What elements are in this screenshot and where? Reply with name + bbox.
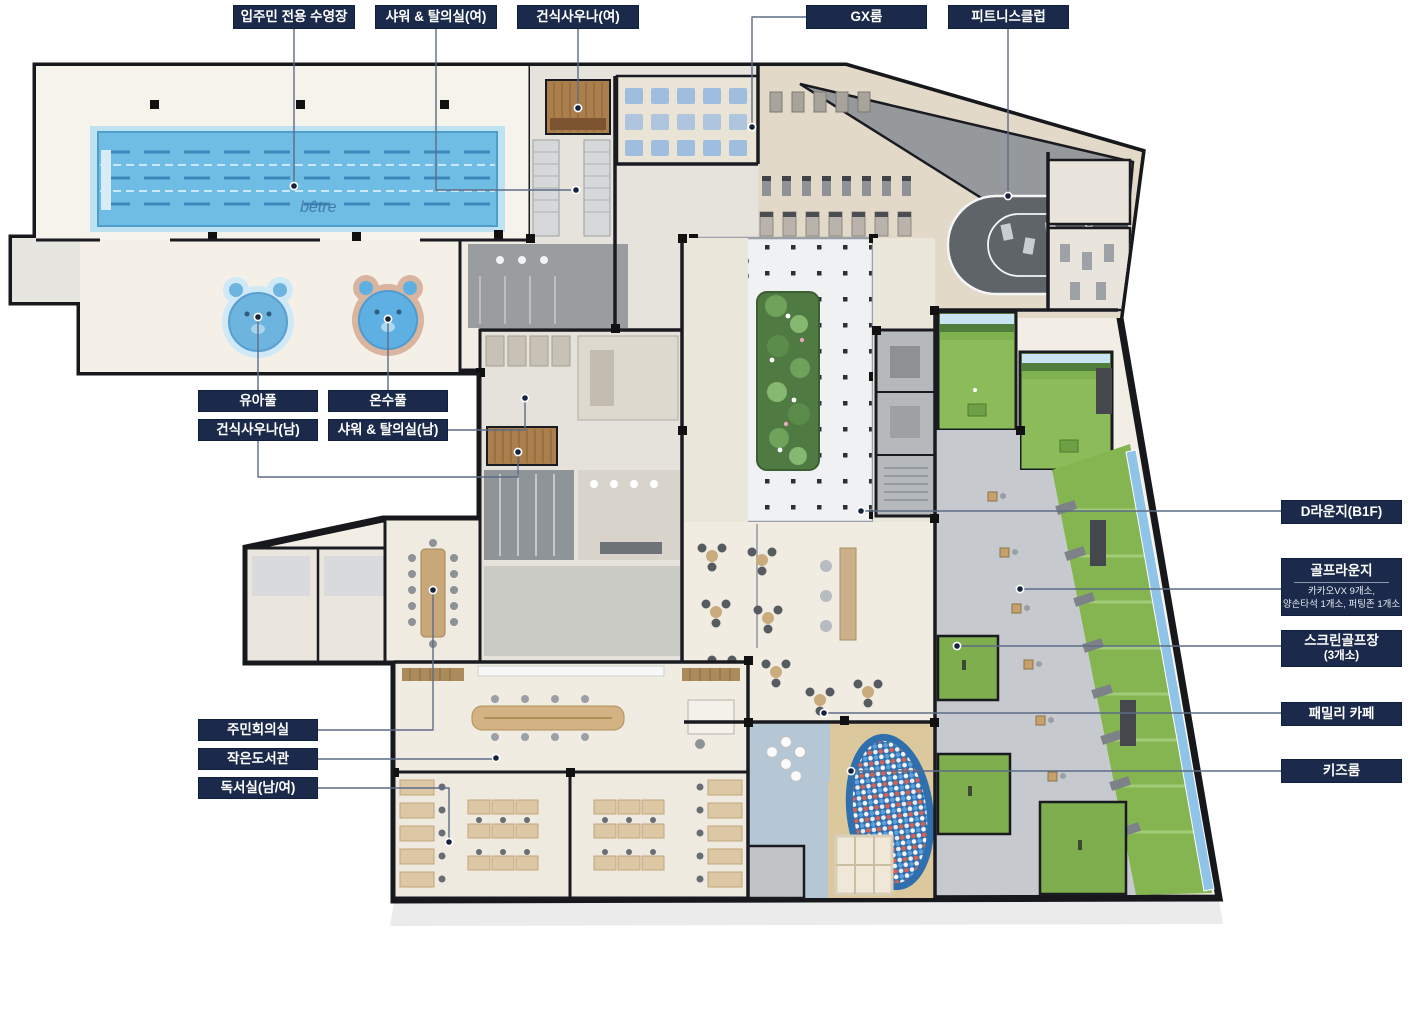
callout-label: 샤워 & 탈의실(여)	[386, 9, 487, 25]
callout-dry-sauna-women: 건식사우나(여)	[517, 5, 639, 29]
callout-label: 입주민 전용 수영장	[241, 9, 348, 25]
callout-label: 스크린골프장	[1304, 633, 1379, 649]
callout-label: 온수풀	[369, 393, 406, 409]
callout-screen-golf: 스크린골프장(3개소)	[1281, 630, 1402, 667]
callout-label: 독서실(남/여)	[221, 780, 296, 796]
callout-shower-women: 샤워 & 탈의실(여)	[375, 5, 497, 29]
callout-label: 골프라운지	[1310, 563, 1372, 579]
callout-infant-pool: 유아풀	[198, 390, 318, 412]
callout-family-cafe: 패밀리 카페	[1281, 702, 1402, 726]
callout-subtext: 양손타석 1개소, 퍼팅존 1개소	[1283, 599, 1400, 611]
callout-shower-men: 샤워 & 탈의실(남)	[328, 419, 448, 441]
callout-label: D라운지(B1F)	[1301, 504, 1383, 520]
callout-label: 키즈룸	[1323, 763, 1360, 779]
callout-golf-lounge: 골프라운지카카오VX 9개소,양손타석 1개소, 퍼팅존 1개소	[1281, 558, 1402, 616]
callout-subtext: (3개소)	[1324, 649, 1359, 664]
callout-subtext: 카카오VX 9개소,	[1308, 586, 1375, 598]
callout-fitness-club: 피트니스클럽	[948, 5, 1069, 29]
callout-kids-room: 키즈룸	[1281, 759, 1402, 783]
callout-gx-room: GX룸	[806, 5, 927, 29]
callout-label: 건식사우나(남)	[216, 422, 300, 438]
callout-small-library: 작은도서관	[198, 748, 318, 770]
callout-layer: 입주민 전용 수영장샤워 & 탈의실(여)건식사우나(여)GX룸피트니스클럽유아…	[0, 0, 1408, 1030]
callout-label: 건식사우나(여)	[536, 9, 620, 25]
callout-label: 피트니스클럽	[971, 9, 1046, 25]
callout-label: 주민회의실	[227, 722, 289, 738]
callout-meeting-room: 주민회의실	[198, 719, 318, 741]
callout-dry-sauna-men: 건식사우나(남)	[198, 419, 318, 441]
callout-warm-pool: 온수풀	[328, 390, 448, 412]
callout-label: 패밀리 카페	[1309, 706, 1375, 722]
callout-d-lounge: D라운지(B1F)	[1281, 500, 1402, 524]
callout-label: 샤워 & 탈의실(남)	[338, 422, 439, 438]
callout-reading-room: 독서실(남/여)	[198, 777, 318, 799]
callout-divider	[1294, 582, 1388, 583]
callout-label: GX룸	[851, 9, 883, 25]
callout-label: 작은도서관	[227, 751, 289, 767]
floorplan-page: bêtre	[0, 0, 1408, 1030]
callout-label: 유아풀	[239, 393, 276, 409]
callout-resident-pool: 입주민 전용 수영장	[233, 5, 355, 29]
